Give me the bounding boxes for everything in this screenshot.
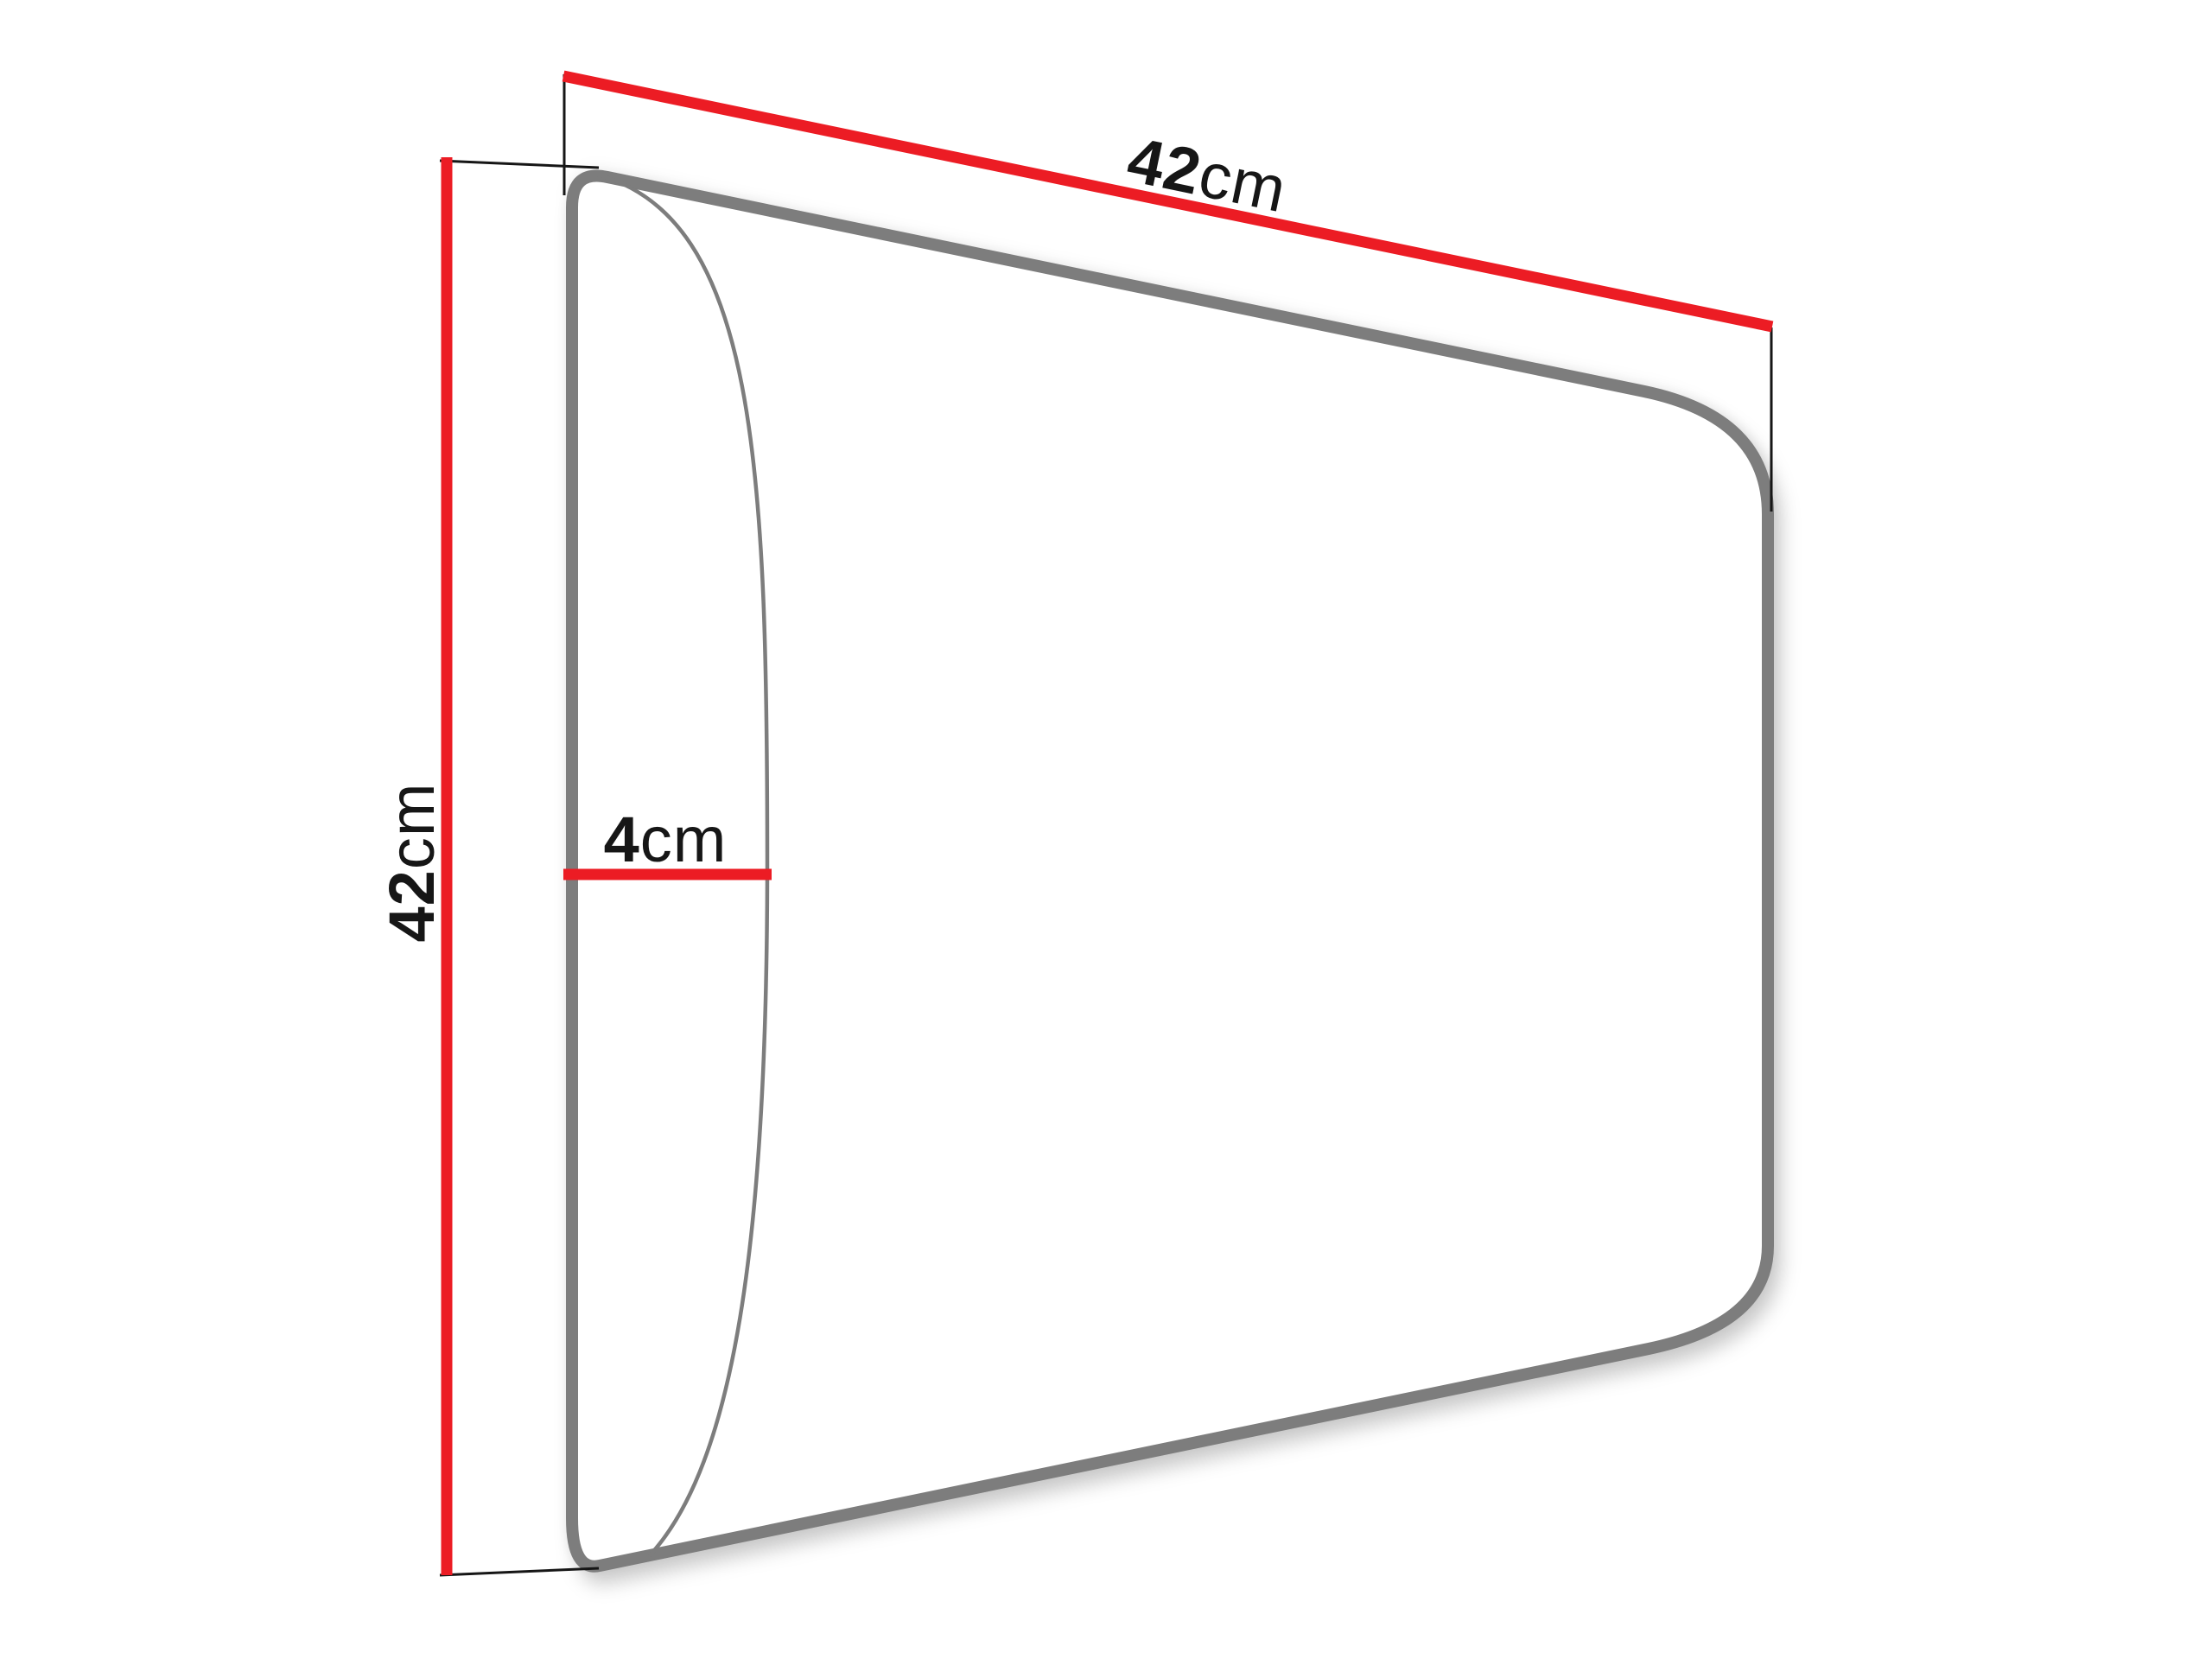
height-value: 42	[376, 869, 448, 942]
width-value: 42	[1122, 124, 1207, 208]
depth-value: 4	[604, 804, 640, 875]
extension-line-left-lower	[440, 1568, 599, 1575]
height-unit: cm	[376, 783, 448, 870]
depth-label: 4cm	[604, 804, 728, 875]
diagram-canvas: 42cm 42cm 4cm	[0, 0, 2212, 1659]
height-label: 42cm	[376, 783, 448, 943]
depth-unit: cm	[640, 804, 728, 875]
extension-line-left-upper	[440, 161, 599, 168]
panel-dimension-diagram: 42cm 42cm 4cm	[0, 0, 2212, 1659]
width-label: 42cm	[1122, 124, 1293, 226]
